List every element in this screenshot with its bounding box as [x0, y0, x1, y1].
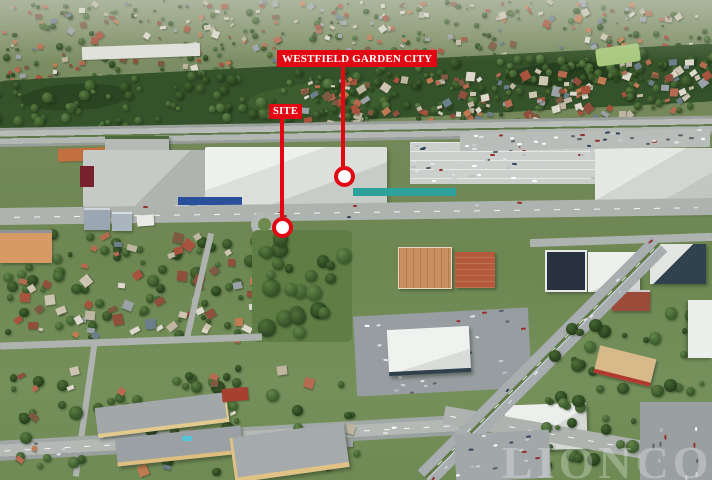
- tree-decoration: [250, 113, 255, 118]
- house-decoration: [454, 77, 459, 81]
- house-decoration: [509, 82, 517, 90]
- tree-decoration: [66, 316, 74, 324]
- tree-decoration: [701, 66, 705, 70]
- tree-decoration: [115, 393, 125, 403]
- house-decoration: [90, 245, 98, 252]
- house-decoration: [571, 79, 577, 84]
- car-decoration: [517, 144, 522, 146]
- house-decoration: [572, 77, 582, 87]
- tree-decoration: [364, 101, 369, 107]
- house-decoration: [578, 105, 584, 111]
- tree-decoration: [69, 406, 83, 420]
- house-decoration: [438, 111, 443, 116]
- car-decoration: [577, 138, 582, 141]
- house-decoration: [307, 80, 313, 85]
- tree-decoration: [30, 113, 39, 122]
- house-decoration: [436, 79, 445, 86]
- tree-decoration: [270, 98, 275, 103]
- car-decoration: [695, 140, 699, 143]
- tree-decoration: [640, 78, 643, 81]
- house-decoration: [606, 105, 613, 112]
- house-decoration: [349, 79, 357, 86]
- house-decoration: [211, 381, 218, 388]
- house-decoration: [205, 308, 216, 319]
- tree-decoration: [197, 73, 202, 78]
- house-decoration: [224, 249, 232, 256]
- tree-decoration: [563, 402, 571, 410]
- house-decoration: [564, 82, 569, 87]
- commercial-dark-building: [545, 250, 587, 292]
- aerial-photo: LIONCORP WESTFIELD GARDEN CITY SITE: [0, 0, 712, 480]
- tree-decoration: [631, 418, 636, 423]
- car-decoration: [507, 134, 512, 136]
- park-site-area: [252, 230, 352, 342]
- house-decoration: [673, 65, 685, 77]
- car-decoration: [512, 162, 517, 165]
- house-decoration: [107, 306, 117, 314]
- house-decoration: [172, 232, 185, 245]
- tree-decoration: [115, 67, 119, 71]
- tree-decoration: [524, 76, 528, 81]
- tree-decoration: [156, 284, 165, 293]
- tree-decoration: [499, 113, 502, 117]
- tree-decoration: [74, 107, 82, 115]
- tree-decoration: [305, 270, 318, 283]
- tree-decoration: [325, 273, 336, 284]
- house-decoration: [557, 71, 567, 79]
- car-decoration: [505, 388, 510, 393]
- tree-decoration: [509, 70, 517, 78]
- tree-decoration: [65, 103, 73, 111]
- house-decoration: [417, 106, 423, 112]
- house-decoration: [665, 74, 674, 83]
- tree-decoration: [136, 86, 142, 92]
- car-decoration: [465, 145, 469, 147]
- tree-decoration: [84, 80, 95, 91]
- car-decoration: [595, 140, 600, 142]
- car-decoration: [678, 135, 683, 137]
- car-decoration: [451, 174, 456, 177]
- house-decoration: [24, 65, 29, 69]
- tree-decoration: [555, 391, 567, 403]
- tree-decoration: [521, 80, 525, 84]
- tree-decoration: [671, 108, 675, 112]
- house-decoration: [393, 77, 400, 84]
- tree-decoration: [313, 111, 320, 119]
- house-decoration: [69, 64, 72, 67]
- car-decoration: [474, 135, 478, 137]
- car-decoration: [507, 166, 512, 169]
- tree-decoration: [284, 283, 297, 296]
- tree-decoration: [215, 262, 220, 267]
- tree-decoration: [541, 96, 549, 104]
- tree-decoration: [54, 267, 65, 278]
- car-decoration: [424, 385, 428, 387]
- tree-decoration: [175, 92, 184, 101]
- house-decoration: [624, 75, 630, 79]
- tree-decoration: [146, 294, 154, 302]
- tree-decoration: [79, 90, 90, 101]
- tree-decoration: [20, 104, 24, 108]
- tree-decoration: [100, 246, 109, 255]
- tree-decoration: [626, 93, 634, 101]
- car-decoration: [421, 380, 425, 383]
- car-decoration: [472, 148, 477, 150]
- house-decoration: [427, 77, 434, 84]
- car-decoration: [580, 134, 585, 136]
- house-decoration: [83, 300, 93, 310]
- tree-decoration: [469, 72, 477, 80]
- tree-decoration: [470, 111, 476, 117]
- car-decoration: [391, 426, 396, 429]
- tree-decoration: [68, 252, 72, 256]
- tree-decoration: [317, 255, 330, 268]
- tree-decoration: [33, 376, 44, 387]
- house-decoration: [650, 74, 659, 80]
- tree-decoration: [316, 99, 320, 103]
- tree-decoration: [680, 351, 686, 357]
- tree-decoration: [232, 278, 242, 288]
- tree-decoration: [525, 75, 532, 82]
- tree-decoration: [670, 81, 677, 89]
- car-decoration: [674, 141, 679, 143]
- car-decoration: [701, 137, 705, 139]
- callout-line-westfield: [341, 66, 345, 169]
- tree-decoration: [602, 415, 609, 422]
- tree-decoration: [160, 68, 164, 72]
- house-decoration: [20, 292, 31, 301]
- car-decoration: [616, 278, 621, 283]
- tree-decoration: [643, 337, 649, 343]
- tree-decoration: [106, 94, 111, 99]
- house-decoration: [668, 71, 678, 80]
- white-house: [137, 214, 155, 226]
- car-decoration: [511, 177, 516, 180]
- house-decoration: [648, 80, 655, 86]
- tree-decoration: [182, 383, 189, 390]
- tree-decoration: [211, 268, 215, 272]
- tree-decoration: [55, 322, 63, 330]
- tree-decoration: [155, 117, 161, 123]
- tree-decoration: [365, 116, 369, 120]
- car-decoration: [411, 166, 416, 168]
- house-decoration: [73, 315, 83, 326]
- tree-decoration: [223, 373, 230, 380]
- house-decoration: [476, 77, 482, 83]
- house-decoration: [208, 266, 219, 277]
- tree-decoration: [394, 75, 401, 83]
- car-decoration: [394, 390, 399, 393]
- tree-decoration: [272, 258, 284, 270]
- tree-decoration: [662, 99, 667, 105]
- car-decoration: [511, 140, 515, 143]
- tree-decoration: [549, 350, 561, 362]
- callout-label-westfield-text: WESTFIELD GARDEN CITY: [282, 53, 432, 65]
- tree-decoration: [281, 88, 286, 93]
- tree-decoration: [155, 296, 161, 302]
- house-decoration: [519, 69, 531, 81]
- tree-decoration: [54, 71, 58, 75]
- house-decoration: [466, 72, 476, 82]
- house-decoration: [558, 102, 567, 110]
- house-decoration: [504, 99, 513, 108]
- house-decoration: [481, 94, 490, 103]
- house-decoration: [529, 91, 538, 98]
- house-decoration: [228, 259, 235, 266]
- tree-decoration: [216, 73, 226, 83]
- tree-decoration: [285, 264, 293, 272]
- house-decoration: [86, 328, 95, 334]
- tree-decoration: [635, 105, 638, 108]
- car-decoration: [410, 391, 414, 394]
- tree-decoration: [555, 425, 560, 430]
- tree-decoration: [326, 261, 335, 270]
- car-decoration: [415, 170, 419, 172]
- house-decoration: [55, 305, 67, 315]
- tree-decoration: [131, 75, 138, 82]
- car-decoration: [383, 358, 388, 360]
- tree-decoration: [31, 104, 39, 112]
- tree-decoration: [7, 294, 14, 301]
- car-decoration: [470, 315, 475, 318]
- tree-decoration: [571, 357, 576, 362]
- house-decoration: [621, 91, 627, 97]
- house-decoration: [79, 273, 93, 287]
- car-decoration: [449, 175, 454, 178]
- car-decoration: [630, 137, 634, 139]
- car-decoration: [466, 428, 471, 433]
- house-decoration: [14, 66, 21, 73]
- house-decoration: [19, 278, 28, 285]
- house-decoration: [633, 83, 640, 89]
- tree-decoration: [294, 69, 303, 78]
- house-decoration: [356, 84, 367, 95]
- car-decoration: [646, 143, 650, 145]
- tree-decoration: [469, 89, 474, 95]
- house-decoration: [563, 92, 570, 99]
- house-decoration: [485, 97, 490, 101]
- house-decoration: [486, 104, 491, 108]
- tree-decoration: [218, 85, 228, 95]
- tree-decoration: [216, 103, 225, 112]
- tree-decoration: [647, 80, 651, 84]
- house-decoration: [304, 94, 310, 99]
- house-decoration: [34, 304, 44, 314]
- house-decoration: [365, 82, 370, 87]
- tree-decoration: [139, 310, 145, 316]
- car-decoration: [434, 169, 439, 172]
- tree-decoration: [576, 329, 584, 337]
- callout-label-site: SITE: [269, 104, 302, 119]
- tree-decoration: [557, 92, 564, 100]
- car-decoration: [475, 204, 479, 206]
- house-decoration: [16, 373, 25, 380]
- house-decoration: [118, 283, 125, 289]
- house-decoration: [678, 88, 687, 96]
- tree-decoration: [147, 275, 159, 287]
- car-decoration: [460, 164, 464, 166]
- house-decoration: [555, 96, 564, 104]
- tree-decoration: [338, 381, 345, 388]
- house-decoration: [20, 74, 26, 79]
- commercial-tan-roof-a: [398, 247, 452, 289]
- tree-decoration: [100, 121, 104, 125]
- tree-decoration: [53, 271, 64, 282]
- car-decoration: [472, 144, 477, 146]
- car-decoration: [439, 169, 443, 172]
- house-decoration: [458, 78, 465, 85]
- tree-decoration: [292, 405, 303, 416]
- car-decoration: [482, 312, 487, 315]
- tree-decoration: [336, 248, 351, 263]
- tree-decoration: [276, 310, 293, 327]
- tree-decoration: [165, 100, 172, 107]
- house-decoration: [670, 89, 678, 97]
- car-decoration: [422, 147, 427, 150]
- tree-decoration: [40, 287, 46, 293]
- tree-decoration: [446, 102, 454, 110]
- house-decoration: [301, 88, 309, 94]
- house-decoration: [77, 318, 86, 324]
- tree-decoration: [117, 71, 119, 73]
- house-decoration: [232, 281, 242, 290]
- house-decoration: [585, 84, 592, 89]
- house-decoration: [353, 99, 362, 107]
- tree-decoration: [289, 306, 304, 321]
- house-decoration: [112, 313, 124, 326]
- tree-decoration: [22, 285, 31, 294]
- tree-decoration: [43, 454, 51, 462]
- car-decoration: [430, 163, 435, 166]
- house-decoration: [321, 91, 332, 102]
- tree-decoration: [348, 412, 355, 419]
- tree-decoration: [136, 270, 143, 277]
- tree-decoration: [315, 80, 319, 85]
- tree-decoration: [208, 376, 218, 386]
- car-decoration: [499, 309, 504, 312]
- tree-decoration: [58, 401, 66, 409]
- car-decoration: [456, 474, 461, 477]
- tree-decoration: [123, 90, 134, 101]
- tree-decoration: [363, 98, 368, 103]
- tree-decoration: [589, 319, 602, 332]
- car-decoration: [431, 476, 435, 480]
- house-decoration: [230, 411, 237, 417]
- tree-decoration: [617, 383, 628, 394]
- tree-decoration: [183, 81, 194, 92]
- tree-decoration: [686, 387, 695, 396]
- car-decoration: [542, 143, 546, 145]
- tree-decoration: [450, 87, 453, 90]
- car-decoration: [482, 435, 486, 438]
- car-decoration: [499, 134, 504, 137]
- tree-decoration: [262, 279, 280, 297]
- car-decoration: [519, 147, 524, 149]
- house-decoration: [442, 98, 452, 108]
- tree-decoration: [196, 248, 202, 254]
- house-decoration: [16, 455, 25, 463]
- house-decoration: [38, 328, 44, 332]
- tree-decoration: [111, 238, 120, 247]
- tree-decoration: [29, 409, 36, 416]
- tree-decoration: [363, 90, 367, 94]
- tree-decoration: [290, 309, 306, 325]
- tree-decoration: [86, 233, 94, 241]
- house-decoration: [569, 91, 576, 96]
- house-decoration: [697, 77, 709, 89]
- tree-decoration: [113, 245, 122, 254]
- house-decoration: [381, 106, 391, 115]
- tree-decoration: [630, 77, 634, 82]
- tree-decoration: [56, 308, 64, 316]
- tree-decoration: [209, 106, 216, 113]
- car-decoration: [503, 158, 507, 160]
- house-decoration: [114, 252, 120, 257]
- tree-decoration: [25, 264, 32, 271]
- car-decoration: [415, 145, 419, 147]
- car-decoration: [470, 465, 475, 468]
- house-decoration: [144, 319, 156, 330]
- car-decoration: [470, 175, 475, 177]
- tree-decoration: [225, 283, 233, 291]
- tree-decoration: [7, 281, 18, 292]
- house-decoration: [496, 73, 502, 78]
- car-decoration: [580, 154, 585, 156]
- car-decoration: [578, 154, 582, 156]
- house-decoration: [468, 108, 474, 114]
- car-decoration: [607, 133, 612, 136]
- tree-decoration: [293, 326, 306, 339]
- car-decoration: [398, 376, 402, 378]
- car-decoration: [520, 146, 525, 148]
- tree-decoration: [201, 315, 207, 321]
- tree-decoration: [651, 385, 664, 398]
- tree-decoration: [222, 239, 232, 249]
- car-decoration: [484, 158, 489, 161]
- tree-decoration: [655, 99, 663, 107]
- tree-decoration: [20, 432, 32, 444]
- car-decoration: [522, 154, 526, 157]
- house-decoration: [551, 86, 562, 97]
- house-decoration: [301, 89, 309, 97]
- tree-decoration: [113, 253, 121, 261]
- tree-decoration: [57, 380, 68, 391]
- car-decoration: [510, 137, 514, 139]
- car-decoration: [603, 139, 607, 141]
- tree-decoration: [353, 450, 361, 458]
- house-decoration: [651, 71, 658, 77]
- tree-decoration: [5, 329, 11, 335]
- tree-decoration: [608, 73, 613, 79]
- tree-decoration: [136, 246, 143, 253]
- tree-decoration: [88, 321, 98, 331]
- tree-decoration: [306, 285, 323, 302]
- house-decoration: [622, 71, 632, 81]
- tree-decoration: [658, 61, 664, 68]
- tree-decoration: [516, 87, 524, 95]
- tree-decoration: [11, 73, 15, 77]
- tree-decoration: [191, 381, 202, 392]
- tree-decoration: [578, 402, 584, 408]
- house-decoration: [574, 102, 583, 110]
- tree-decoration: [286, 80, 292, 86]
- tree-decoration: [410, 82, 413, 85]
- tree-decoration: [201, 300, 208, 307]
- house-decoration: [586, 83, 593, 90]
- tree-decoration: [212, 468, 220, 476]
- car-decoration: [652, 141, 657, 143]
- tree-decoration: [34, 117, 45, 128]
